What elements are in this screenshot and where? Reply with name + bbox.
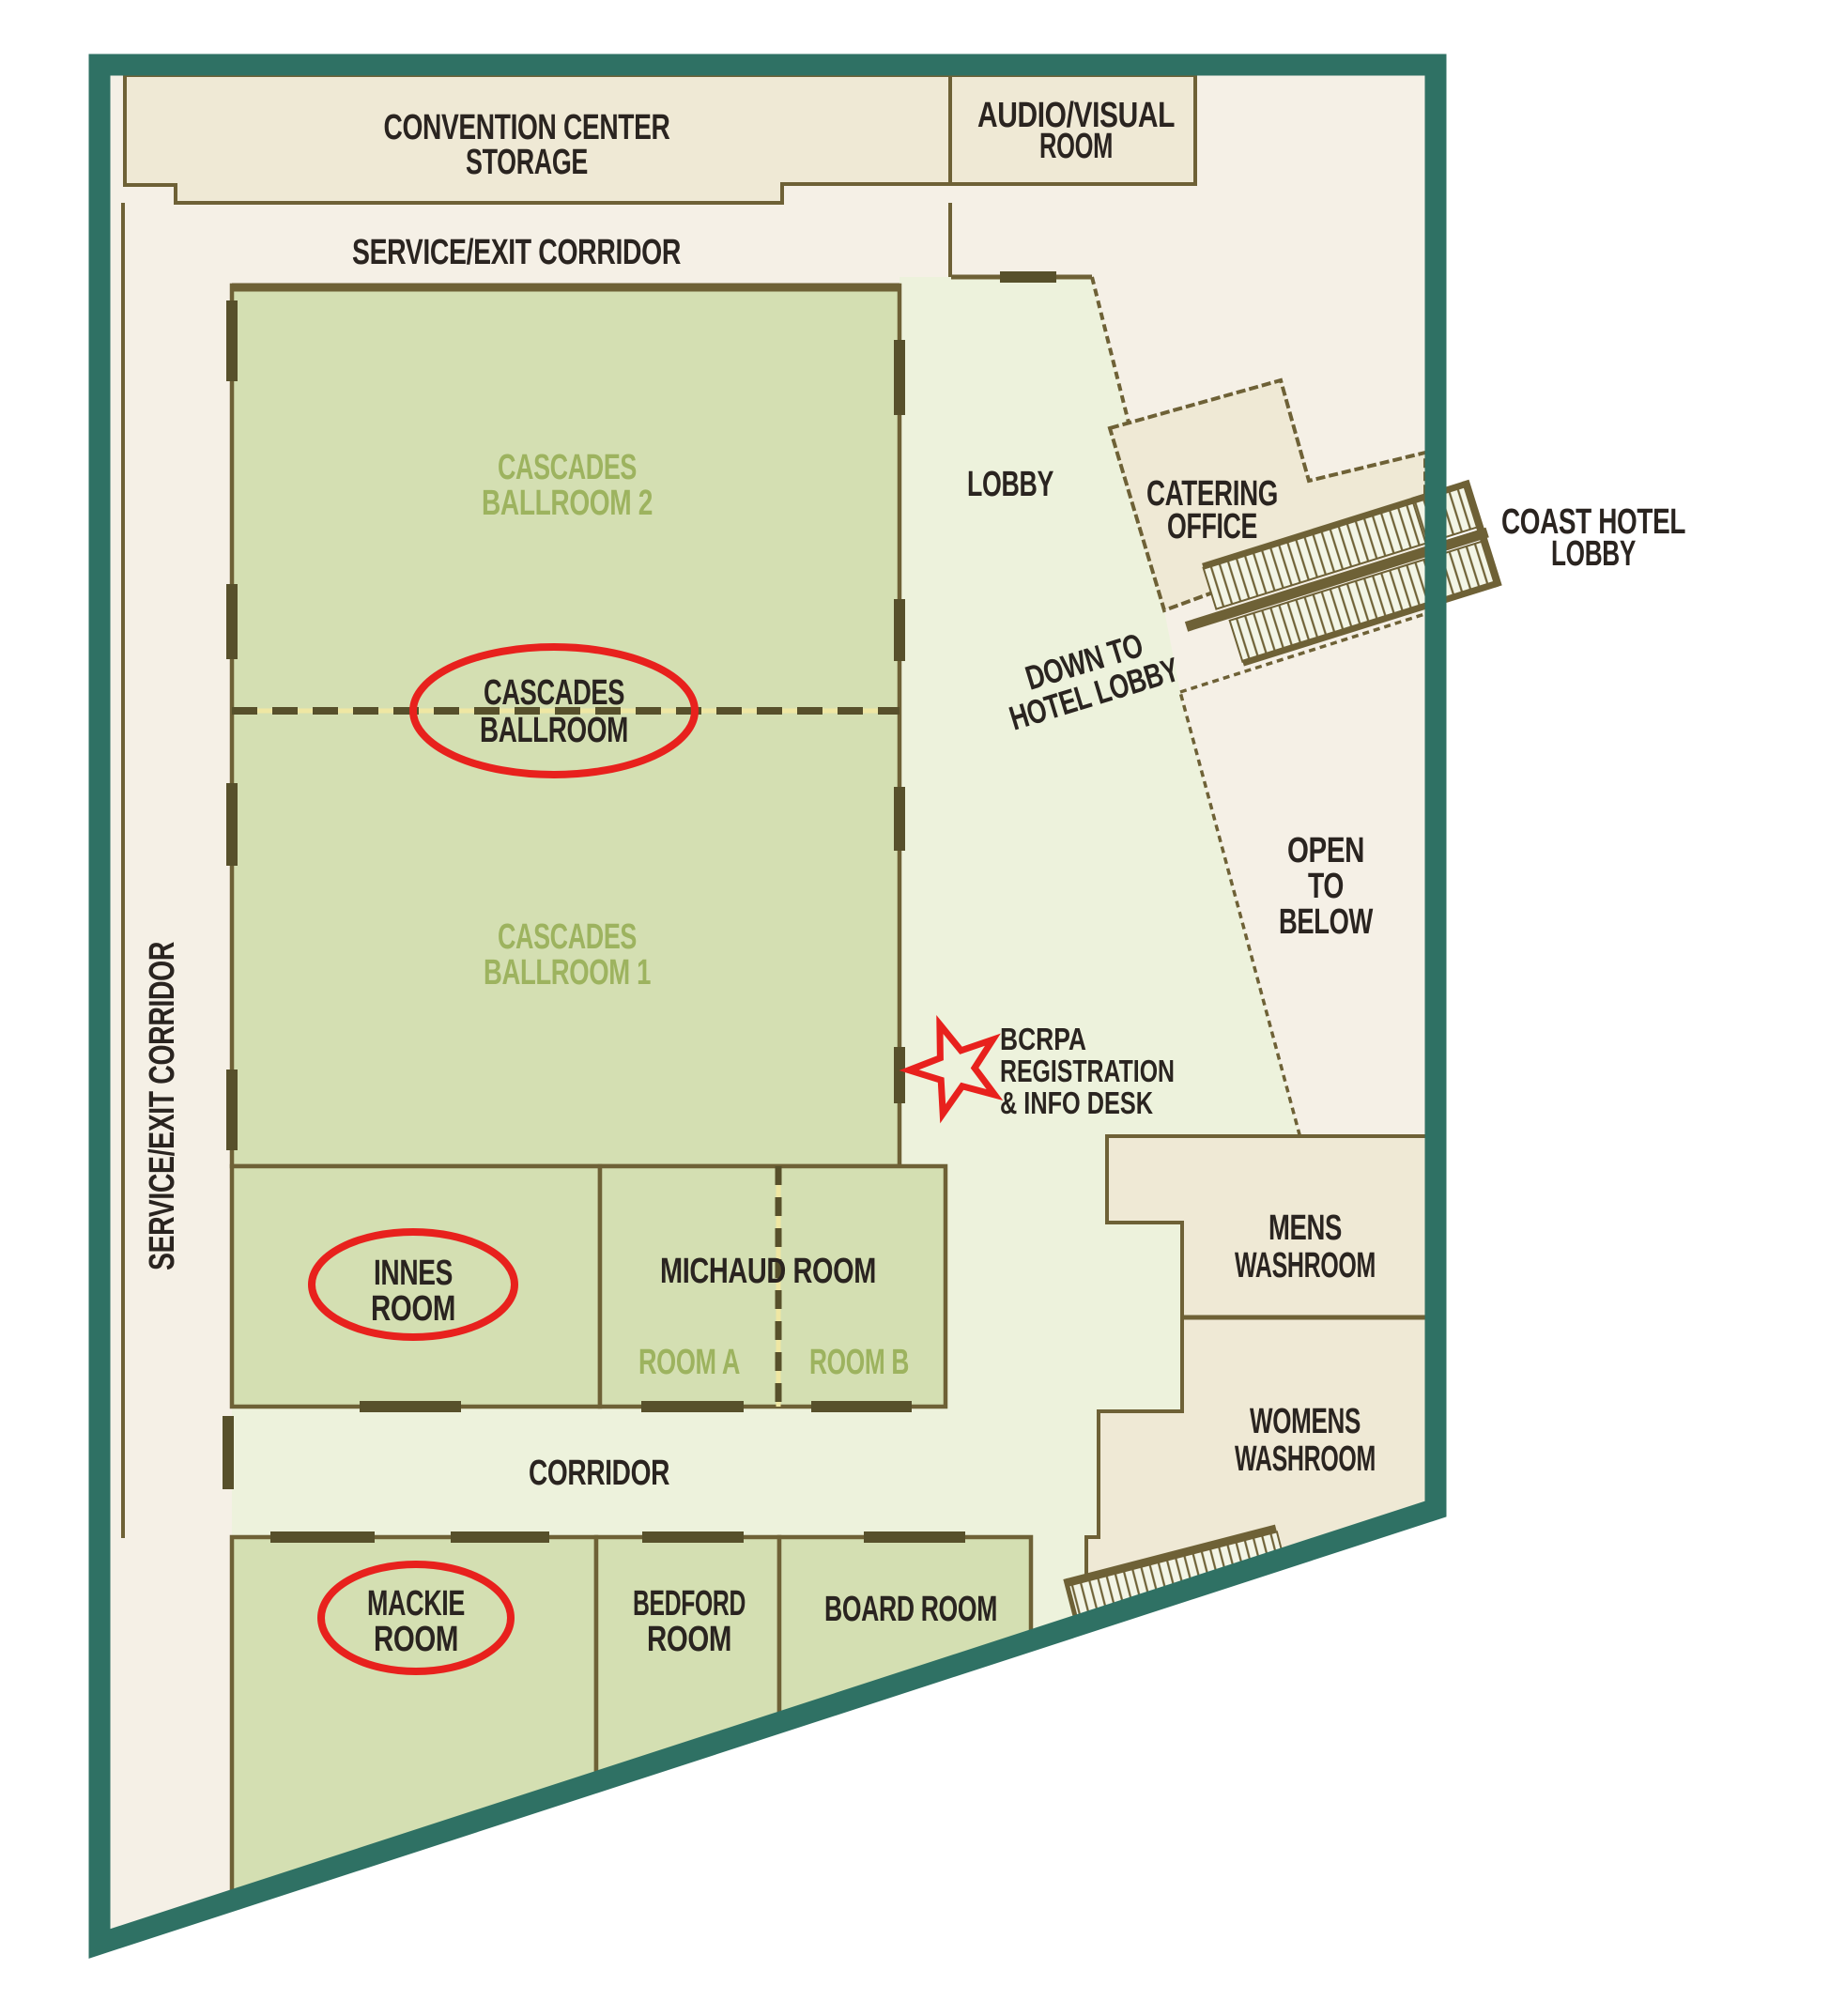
label-mackie-1: MACKIE — [367, 1584, 465, 1624]
label-service-corridor-left: SERVICE/EXIT CORRIDOR — [143, 942, 182, 1270]
label-service-corridor-top: SERVICE/EXIT CORRIDOR — [352, 233, 681, 272]
label-ballroom2-2: BALLROOM 2 — [482, 484, 653, 523]
label-open-3: BELOW — [1279, 902, 1373, 942]
label-bedford-2: ROOM — [647, 1620, 731, 1659]
label-michaud: MICHAUD ROOM — [660, 1252, 876, 1291]
label-catering-2: OFFICE — [1167, 507, 1257, 546]
floor-plan-canvas: CONVENTION CENTER STORAGE AUDIO/VISUAL R… — [0, 0, 1845, 2016]
label-ballroom1-2: BALLROOM 1 — [484, 953, 651, 993]
label-ballroom2-1: CASCADES — [498, 448, 637, 487]
label-innes-2: ROOM — [371, 1289, 455, 1329]
label-mens-1: MENS — [1268, 1208, 1342, 1248]
label-av-2: ROOM — [1039, 127, 1113, 166]
label-ballroom1-1: CASCADES — [498, 917, 637, 957]
label-registration-2: REGISTRATION — [1000, 1054, 1175, 1088]
label-open-1: OPEN — [1287, 831, 1364, 870]
label-room-b: ROOM B — [809, 1343, 909, 1382]
label-registration-1: BCRPA — [1000, 1022, 1086, 1056]
label-mens-2: WASHROOM — [1235, 1246, 1376, 1285]
label-registration-3: & INFO DESK — [1000, 1085, 1153, 1120]
label-storage-2: STORAGE — [466, 143, 588, 182]
label-corridor: CORRIDOR — [529, 1454, 669, 1493]
label-open-2: TO — [1308, 867, 1344, 906]
label-lobby: LOBBY — [967, 465, 1053, 504]
label-mackie-2: ROOM — [374, 1620, 458, 1659]
label-innes-1: INNES — [374, 1254, 453, 1293]
floor-plan-page: CONVENTION CENTER STORAGE AUDIO/VISUAL R… — [0, 0, 1845, 2016]
label-board: BOARD ROOM — [824, 1590, 997, 1629]
label-storage-1: CONVENTION CENTER — [384, 108, 670, 147]
label-ballroom-circled-1: CASCADES — [484, 673, 624, 713]
label-womens-1: WOMENS — [1250, 1402, 1361, 1441]
label-coast-hotel-2: LOBBY — [1551, 534, 1636, 574]
label-womens-2: WASHROOM — [1235, 1439, 1376, 1479]
label-bedford-1: BEDFORD — [633, 1584, 746, 1624]
label-room-a: ROOM A — [638, 1343, 740, 1382]
label-ballroom-circled-2: BALLROOM — [480, 711, 628, 750]
